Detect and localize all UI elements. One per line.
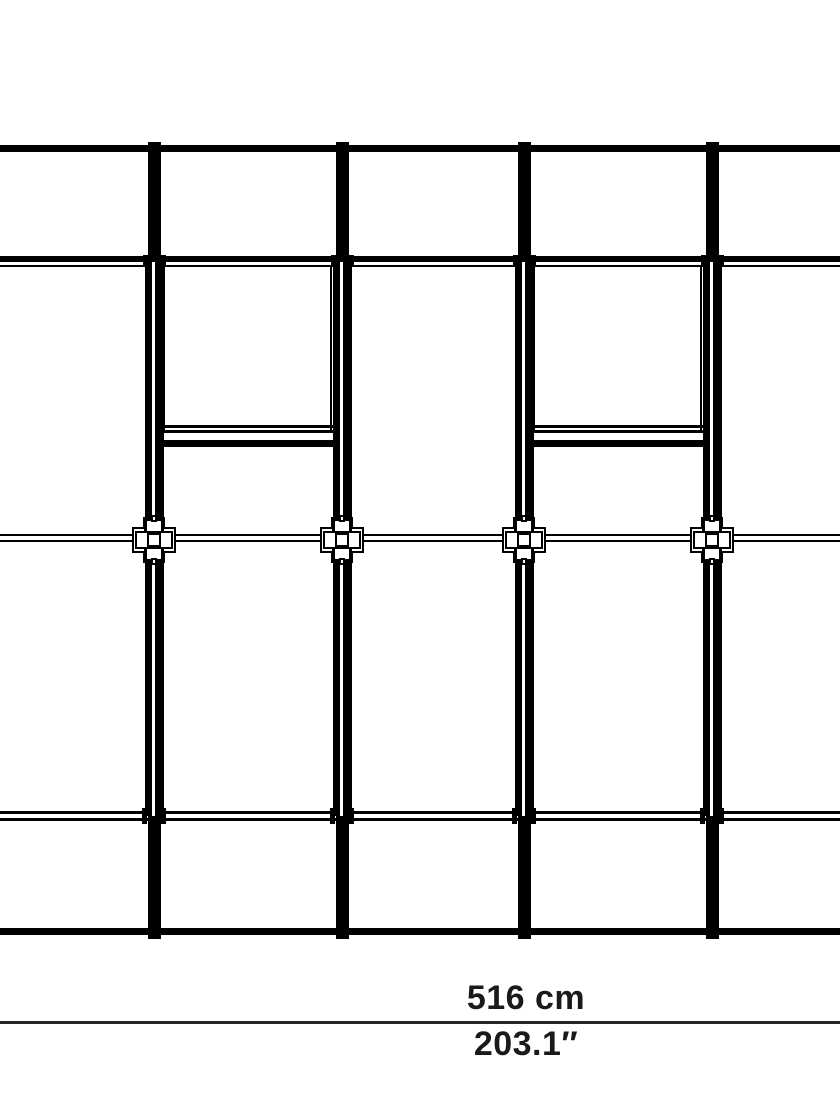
post-1-rail-tab-left xyxy=(143,255,148,265)
post-2-rail-tab-left xyxy=(331,255,336,265)
window-a-side-left xyxy=(163,266,165,433)
connector-center-hub xyxy=(705,533,719,547)
connector-post-stub-bottom xyxy=(521,558,527,565)
post-3-rail-tab-right xyxy=(531,255,536,265)
post-4-bottom xyxy=(706,812,719,939)
window-a-sill-line-2 xyxy=(160,430,336,433)
post-2-bottom xyxy=(336,812,349,939)
post-2-foot-tab-left xyxy=(330,808,335,824)
connector-post-stub-bottom xyxy=(151,558,157,565)
post-4-top xyxy=(706,142,719,266)
dimension-line xyxy=(0,1021,840,1024)
connector-post-stub-bottom xyxy=(709,558,715,565)
post-3-foot-tab-left xyxy=(512,808,517,824)
post-4-rail-tab-left xyxy=(701,255,706,265)
connector-post-stub-top xyxy=(709,515,715,522)
post-4-foot-tab-left xyxy=(700,808,705,824)
window-b-sill-line-1 xyxy=(530,425,706,428)
post-1-foot-tab-left xyxy=(142,808,147,824)
post-1-top xyxy=(148,142,161,266)
window-b-cross-bar xyxy=(531,440,705,447)
post-3-bottom xyxy=(518,812,531,939)
cross-connector-2 xyxy=(320,517,364,563)
connector-center-hub xyxy=(517,533,531,547)
connector-post-stub-bottom xyxy=(339,558,345,565)
window-a-sill-line-1 xyxy=(160,425,336,428)
connector-post-stub-top xyxy=(339,515,345,522)
post-3-rail-tab-left xyxy=(513,255,518,265)
cross-connector-4 xyxy=(690,517,734,563)
window-a-side-right xyxy=(330,266,332,433)
cross-connector-1 xyxy=(132,517,176,563)
cross-connector-3 xyxy=(502,517,546,563)
post-1-foot-tab-right xyxy=(161,808,166,824)
connector-post-stub-top xyxy=(151,515,157,522)
post-4-foot-tab-right xyxy=(719,808,724,824)
connector-center-hub xyxy=(147,533,161,547)
dimension-imperial-label: 203.1″ xyxy=(474,1027,578,1061)
post-1-rail-tab-right xyxy=(161,255,166,265)
window-b-sill-line-2 xyxy=(530,430,706,433)
window-a-cross-bar xyxy=(161,440,335,447)
post-2-foot-tab-right xyxy=(349,808,354,824)
connector-post-stub-top xyxy=(521,515,527,522)
post-3-foot-tab-right xyxy=(531,808,536,824)
post-2-top xyxy=(336,142,349,266)
post-1-bottom xyxy=(148,812,161,939)
window-b-side-left xyxy=(533,266,535,433)
dimension-metric-label: 516 cm xyxy=(467,981,585,1015)
post-3-top xyxy=(518,142,531,266)
frame-elevation-diagram: 516 cm 203.1″ xyxy=(0,0,840,1120)
window-b-side-right xyxy=(700,266,702,433)
post-4-rail-tab-right xyxy=(719,255,724,265)
connector-center-hub xyxy=(335,533,349,547)
post-2-rail-tab-right xyxy=(349,255,354,265)
